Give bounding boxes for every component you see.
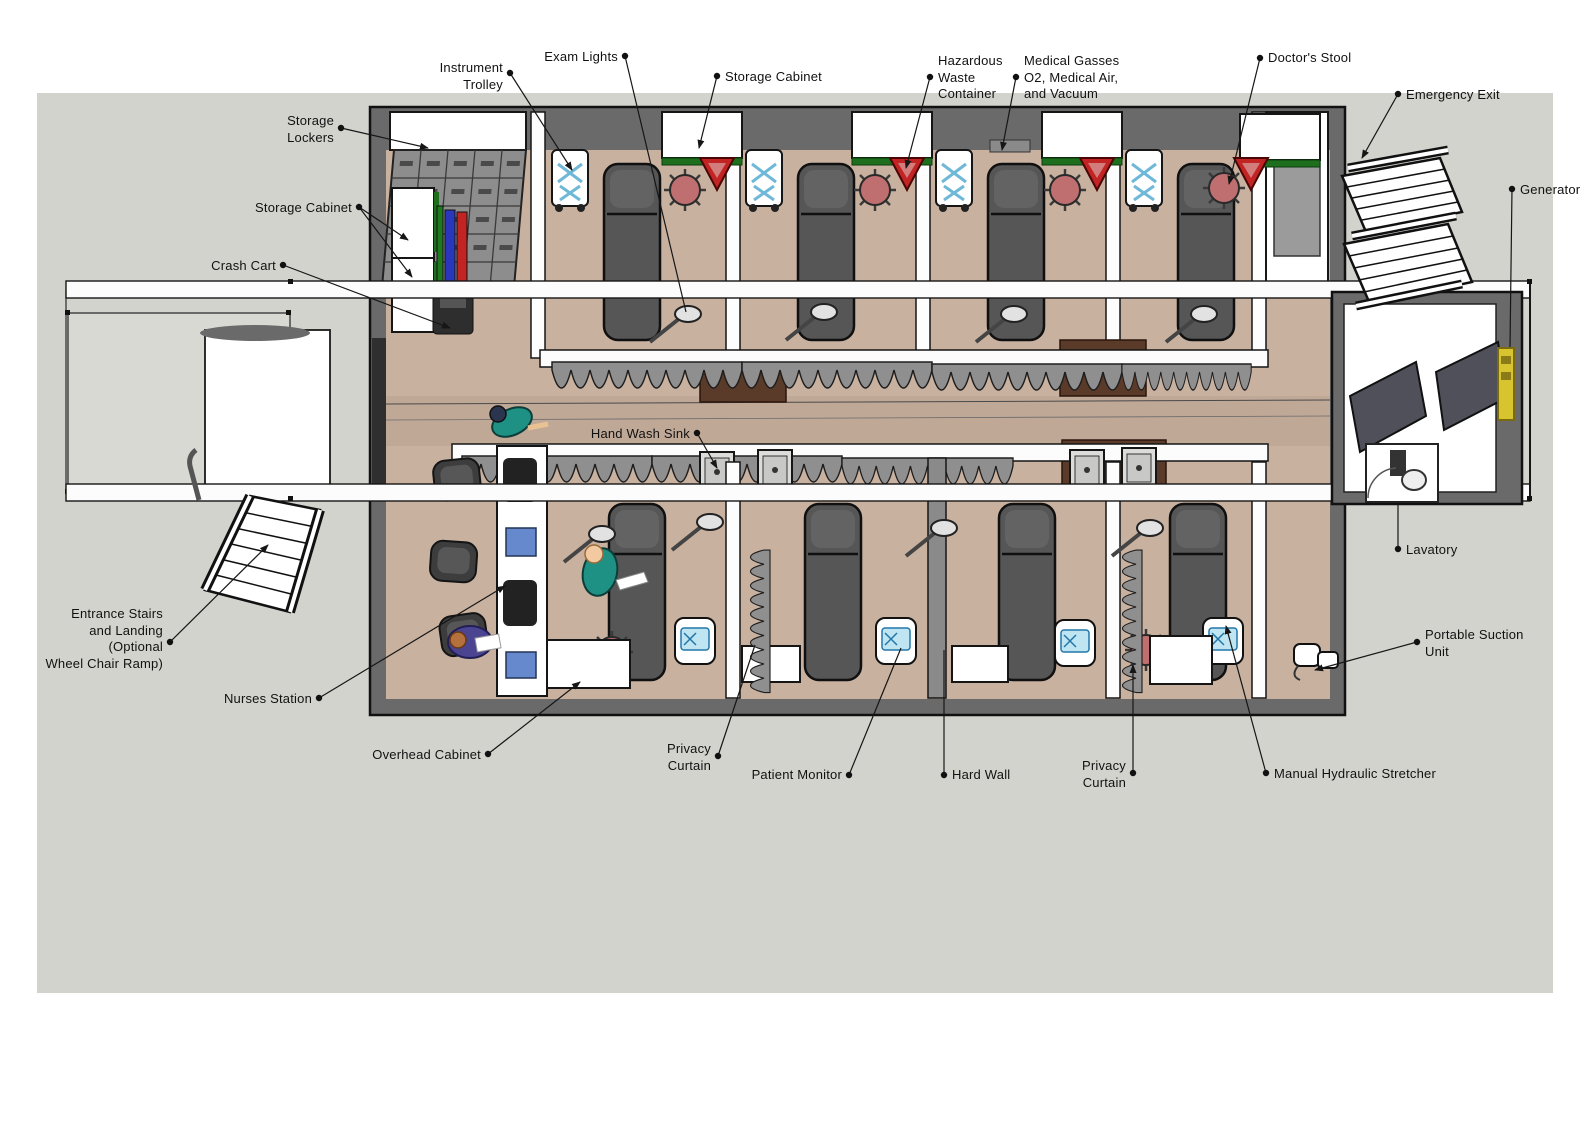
utility-room: [1332, 292, 1522, 504]
lavatory-drawing: [1366, 444, 1438, 502]
patient-monitor-drawing: [675, 618, 715, 664]
mobile-medical-unit-floor-plan: Instrument TrolleyExam LightsStorage Cab…: [0, 0, 1587, 1122]
storage-cabinet-left-drawing: [392, 188, 439, 332]
floor-plan-drawing: [0, 0, 1587, 1122]
crash-cart-drawing: [433, 206, 473, 334]
medical-gas-outlet: [990, 140, 1030, 152]
